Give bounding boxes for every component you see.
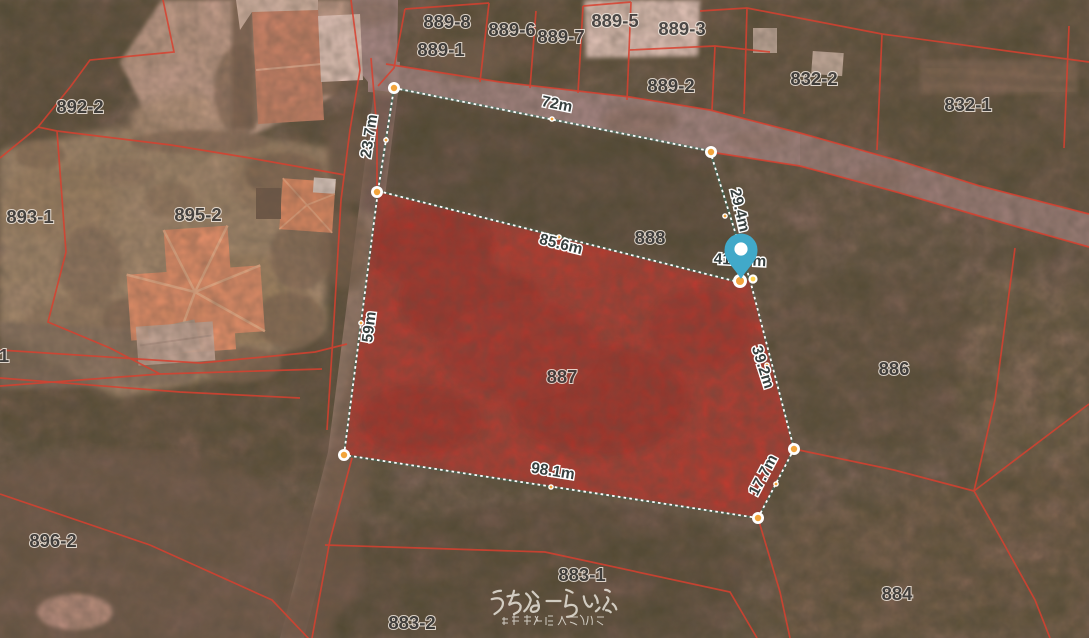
svg-text:889-6: 889-6	[488, 19, 535, 40]
svg-text:889-8: 889-8	[423, 11, 470, 32]
svg-text:893-1: 893-1	[6, 206, 53, 227]
svg-text:889-3: 889-3	[658, 18, 705, 39]
svg-text:889-5: 889-5	[591, 10, 638, 31]
svg-text:889-2: 889-2	[647, 75, 694, 96]
svg-text:883-1: 883-1	[558, 564, 605, 585]
svg-text:892-2: 892-2	[56, 96, 103, 117]
svg-text:883-2: 883-2	[388, 612, 435, 633]
svg-text:888: 888	[635, 227, 666, 248]
svg-text:887: 887	[547, 366, 578, 387]
svg-text:896-2: 896-2	[29, 530, 76, 551]
svg-text:1: 1	[0, 345, 9, 366]
svg-text:832-2: 832-2	[790, 68, 837, 89]
svg-text:889-7: 889-7	[537, 26, 584, 47]
svg-text:884: 884	[882, 583, 914, 604]
svg-text:886: 886	[879, 358, 910, 379]
svg-text:889-1: 889-1	[417, 39, 464, 60]
svg-text:832-1: 832-1	[944, 94, 991, 115]
svg-text:895-2: 895-2	[174, 204, 221, 225]
